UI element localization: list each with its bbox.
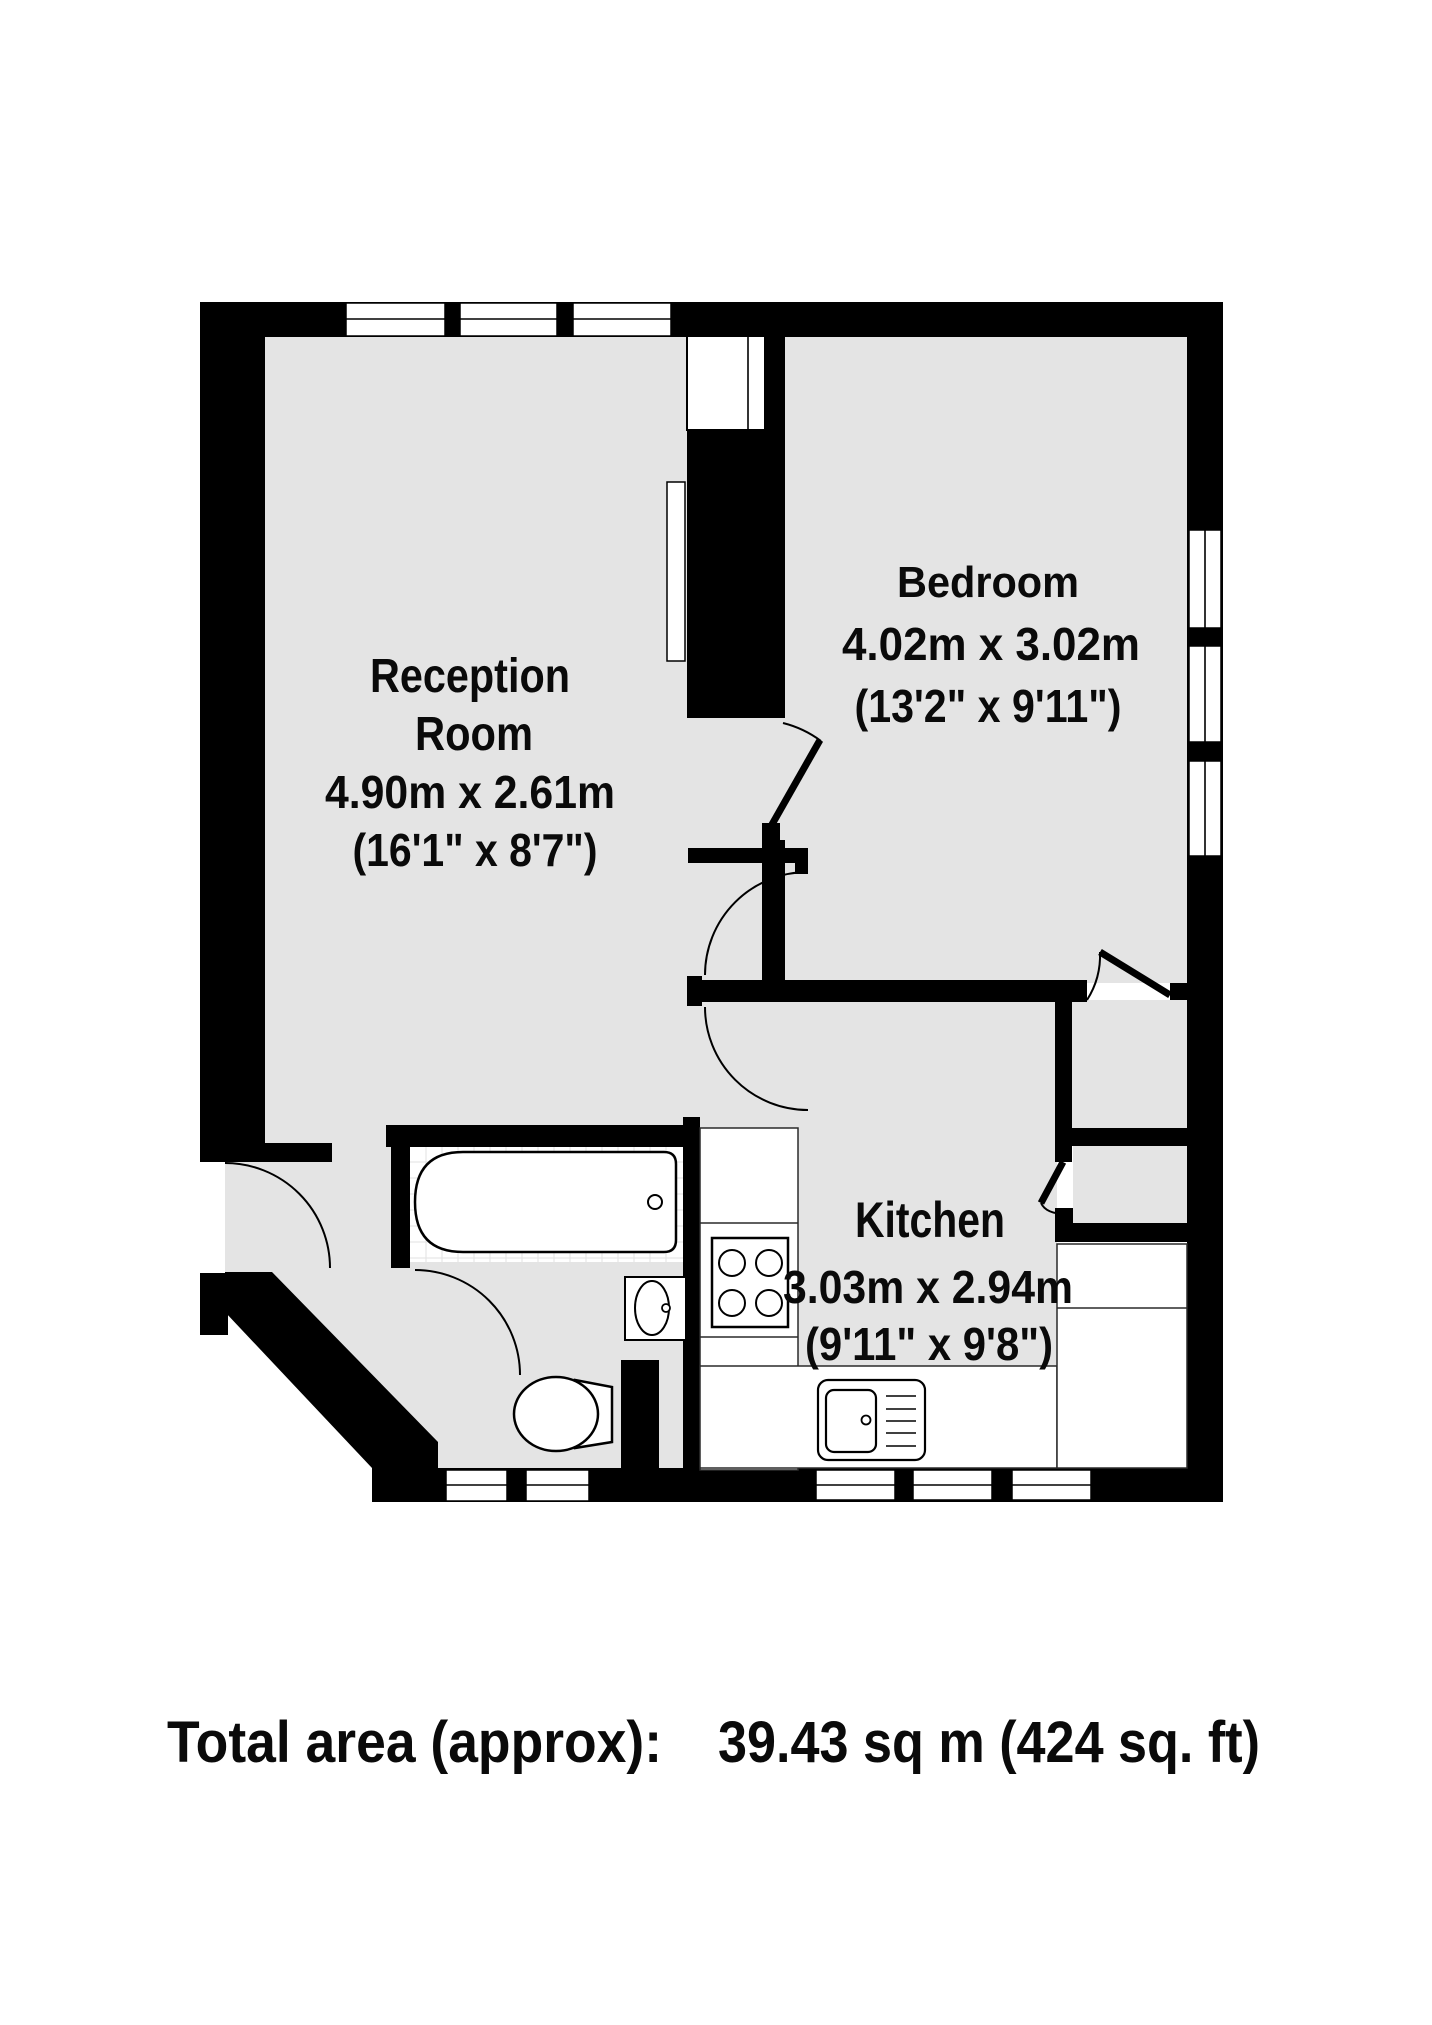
kitchen-dims-imperial: (9'11" x 9'8") bbox=[805, 1318, 1053, 1370]
cupboard-floor bbox=[1072, 1000, 1187, 1128]
radiator bbox=[667, 482, 685, 661]
left-wall-lower-b bbox=[200, 1273, 228, 1335]
floorplan-canvas: Reception Room 4.90m x 2.61m (16'1" x 8'… bbox=[0, 0, 1432, 2025]
hall-door-leaf-open bbox=[688, 848, 808, 863]
bedroom-label: Bedroom bbox=[897, 558, 1079, 607]
toilet-stub-wall bbox=[621, 1360, 659, 1470]
kitchen-sink bbox=[818, 1380, 925, 1460]
kitchen-upper-floor bbox=[687, 1002, 1057, 1130]
chimney-mass-wall bbox=[687, 430, 785, 718]
kitchen-hall-wall bbox=[687, 980, 1087, 1002]
right-window-2 bbox=[1189, 646, 1221, 742]
toilet bbox=[514, 1377, 612, 1451]
bedroom-dims-metric: 4.02m x 3.02m bbox=[842, 618, 1140, 670]
reception-label-line1: Reception bbox=[370, 650, 570, 703]
wash-basin bbox=[625, 1277, 686, 1340]
kitchen-dims-metric: 3.03m x 2.94m bbox=[783, 1261, 1073, 1313]
top-window-1 bbox=[346, 303, 445, 336]
reception-dims-metric: 4.90m x 2.61m bbox=[325, 766, 615, 818]
reception-dims-imperial: (16'1" x 8'7") bbox=[353, 824, 598, 876]
right-window-1 bbox=[1189, 530, 1221, 628]
cupboard-store-divider-wall bbox=[1055, 1128, 1187, 1146]
bathroom-top-wall bbox=[386, 1125, 700, 1147]
right-wall bbox=[1187, 302, 1223, 1502]
right-window-3 bbox=[1189, 761, 1221, 856]
top-window-2 bbox=[460, 303, 557, 336]
hob-ring-icon bbox=[719, 1290, 745, 1316]
hob-ring-icon bbox=[756, 1290, 782, 1316]
bathroom-left-wall bbox=[391, 1147, 410, 1268]
basin-tap-icon bbox=[662, 1304, 670, 1312]
kitchen-label: Kitchen bbox=[855, 1192, 1005, 1248]
floorplan-page: Reception Room 4.90m x 2.61m (16'1" x 8'… bbox=[0, 0, 1432, 2025]
total-area-label: Total area (approx): bbox=[167, 1710, 662, 1775]
top-window-3 bbox=[573, 303, 671, 336]
hob-ring-icon bbox=[719, 1250, 745, 1276]
bathtub bbox=[415, 1152, 676, 1252]
kitchen-window-2 bbox=[913, 1470, 992, 1500]
hob-ring-icon bbox=[756, 1250, 782, 1276]
total-area-line: Total area (approx): 39.43 sq m (424 sq.… bbox=[167, 1710, 1260, 1775]
reception-label-line2: Room bbox=[415, 708, 533, 761]
kitchen-right-counter bbox=[1057, 1244, 1187, 1468]
store-bottom-wall-b bbox=[1073, 1223, 1187, 1242]
chimney-flue bbox=[687, 336, 765, 430]
bedroom-dims-imperial: (13'2" x 9'11") bbox=[855, 680, 1122, 732]
cupboard-door-jamb bbox=[1170, 983, 1187, 1000]
hob bbox=[712, 1238, 788, 1327]
kitchen-window-1 bbox=[816, 1470, 895, 1500]
bathroom-window-1 bbox=[446, 1470, 507, 1501]
wall-beside-chimney bbox=[765, 337, 785, 430]
kitchen-hall-wall-cap bbox=[687, 976, 702, 1006]
reception-bottom-wall bbox=[228, 1143, 332, 1162]
sink-tap-icon bbox=[862, 1416, 871, 1425]
left-wall bbox=[200, 302, 265, 1143]
bathroom-window-2 bbox=[526, 1470, 589, 1501]
total-area-value: 39.43 sq m (424 sq. ft) bbox=[718, 1710, 1260, 1775]
kitchen-window-3 bbox=[1012, 1470, 1091, 1500]
store-floor bbox=[1073, 1146, 1187, 1223]
left-wall-lower-a bbox=[200, 1143, 228, 1162]
bath-tap-icon bbox=[648, 1195, 662, 1209]
